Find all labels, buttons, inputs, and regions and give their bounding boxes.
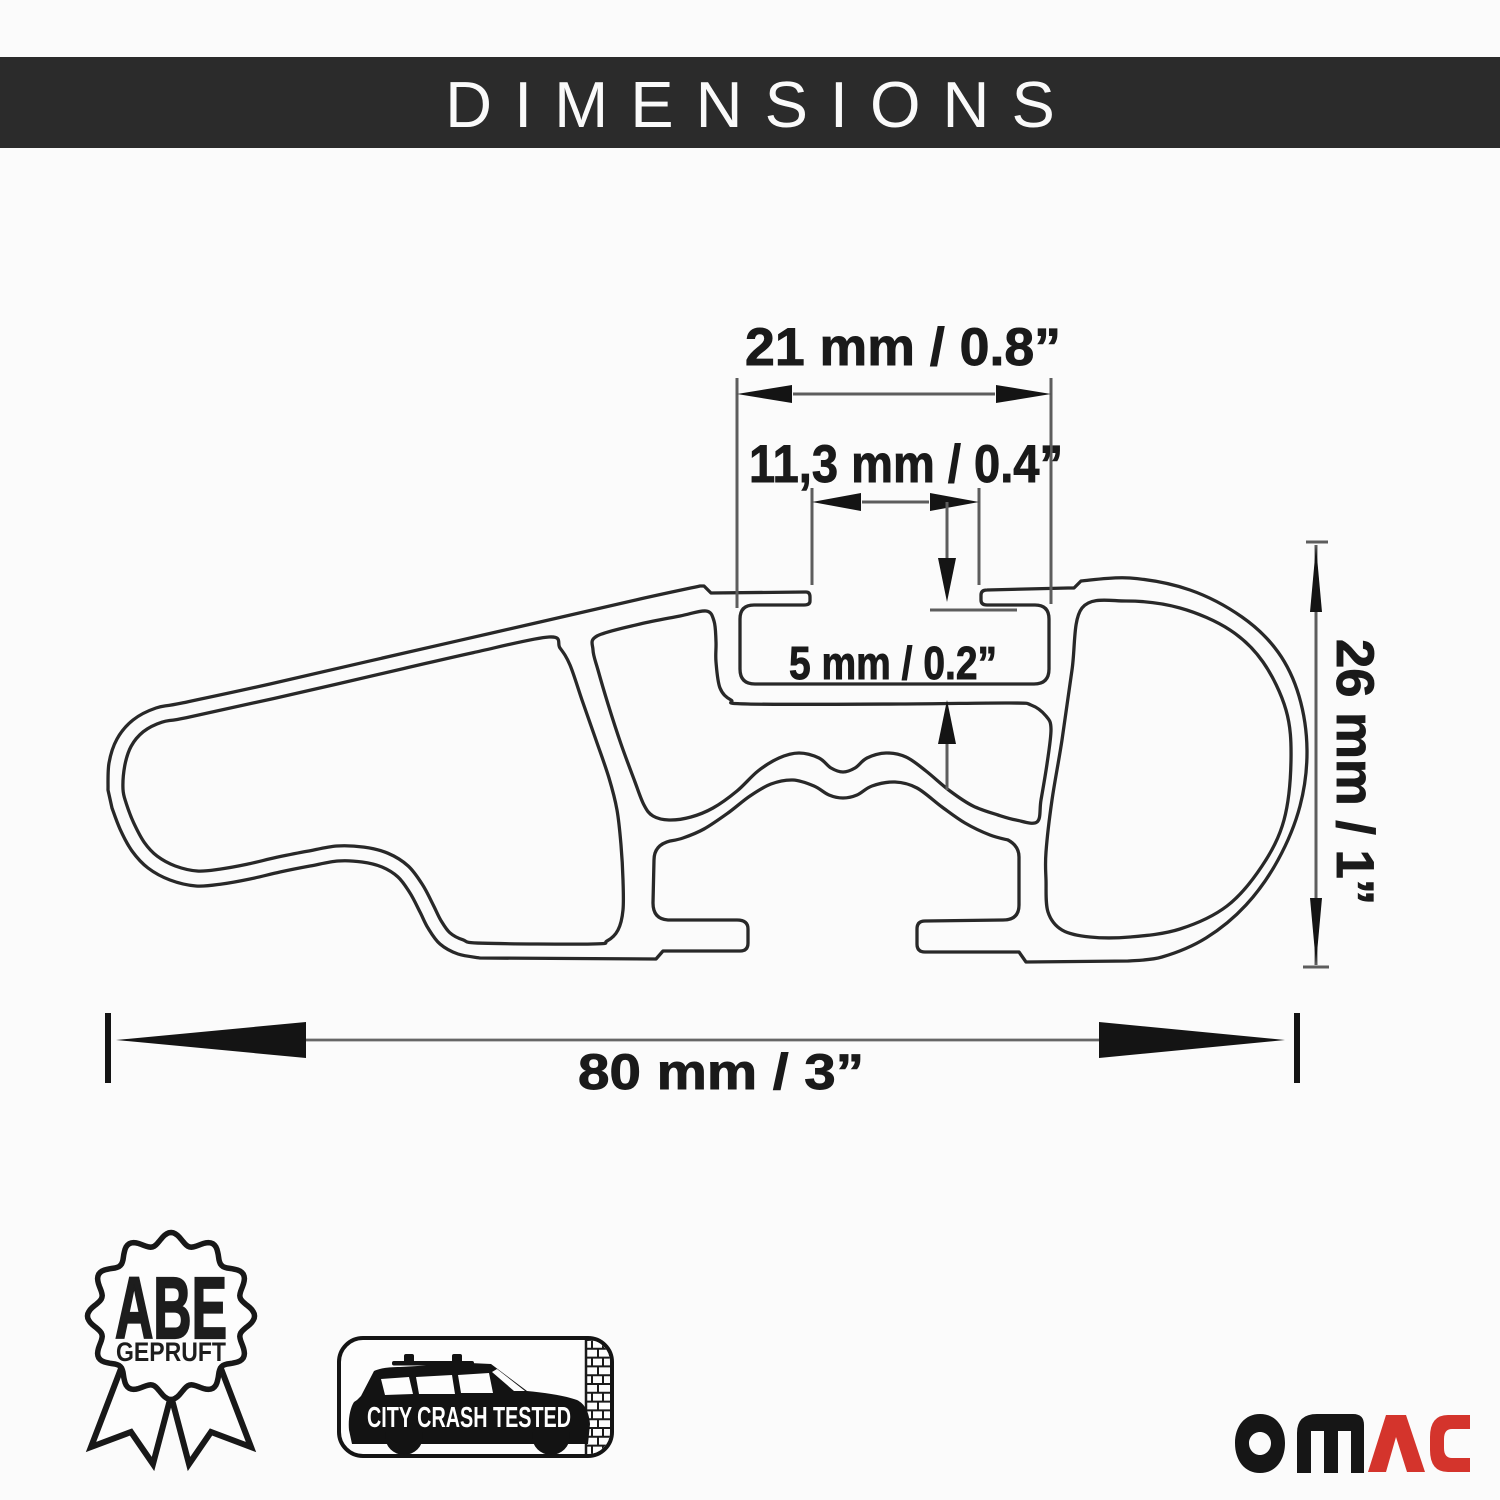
svg-text:CITY CRASH TESTED: CITY CRASH TESTED [367, 1402, 571, 1434]
svg-text:26 mm / 1”: 26 mm / 1” [1325, 639, 1384, 905]
svg-text:5 mm / 0.2”: 5 mm / 0.2” [789, 637, 997, 689]
svg-text:11,3 mm / 0.4”: 11,3 mm / 0.4” [749, 435, 1063, 494]
svg-text:GEPRUFT: GEPRUFT [116, 1337, 226, 1367]
svg-text:21 mm / 0.8”: 21 mm / 0.8” [745, 318, 1061, 377]
svg-text:DIMENSIONS: DIMENSIONS [445, 68, 1077, 141]
svg-text:80 mm / 3”: 80 mm / 3” [578, 1044, 864, 1100]
